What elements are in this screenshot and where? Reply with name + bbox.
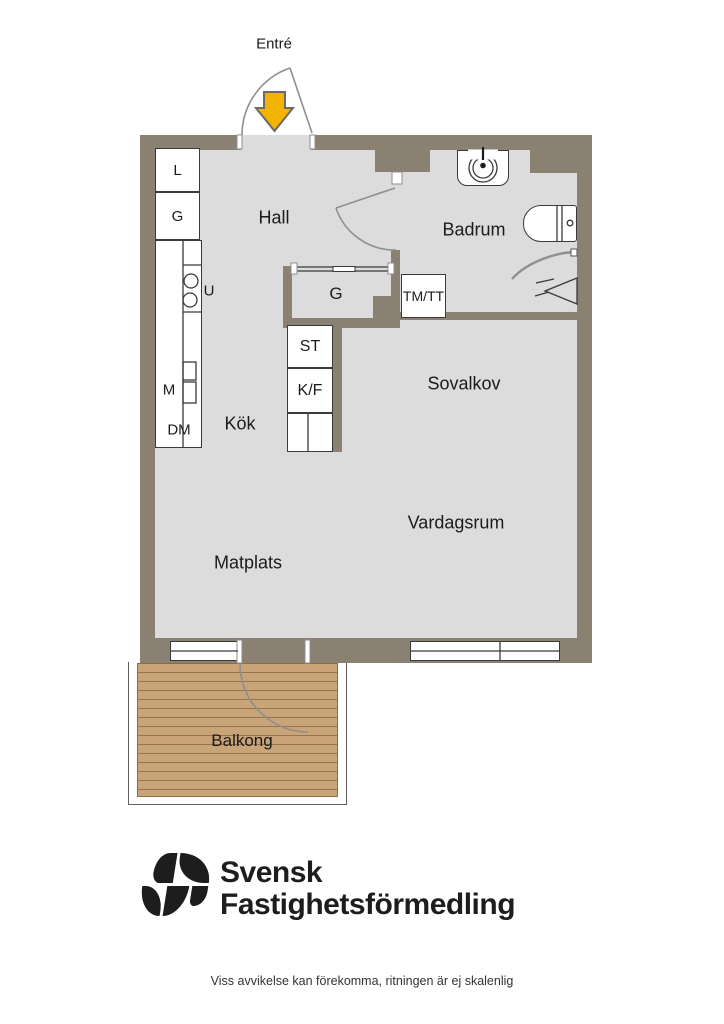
logo-petal <box>138 886 165 916</box>
washer-dryer: TM/TT <box>401 274 446 318</box>
washer-dryer-label: TM/TT <box>403 288 444 304</box>
wall-bathroom-stub <box>375 150 430 172</box>
brand-name-line2: Fastighetsförmedling <box>220 889 515 921</box>
brand-name-line1: Svensk <box>220 857 515 889</box>
closet-wardrobe: G <box>155 192 200 240</box>
room-label-matplats: Matplats <box>214 553 282 574</box>
room-label-badrum: Badrum <box>442 220 505 241</box>
logo-petal <box>189 886 208 906</box>
wall-left <box>140 135 155 663</box>
closet-linen: L <box>155 148 200 192</box>
logo-petal <box>152 853 178 883</box>
room-label-sovalkov: Sovalkov <box>427 374 500 395</box>
fridge-freezer: K/F <box>287 368 333 413</box>
logo-petal <box>176 853 214 883</box>
wall-shaft-block <box>530 150 577 173</box>
closet-linen-label: L <box>173 162 181 179</box>
window-right <box>410 641 560 661</box>
closet-wardrobe-label: G <box>172 208 184 225</box>
window-left <box>170 641 238 661</box>
room-label-vardagsrum: Vardagsrum <box>408 513 505 534</box>
room-label-balkong: Balkong <box>211 731 272 751</box>
wall-right <box>577 135 592 663</box>
entry-arrow-icon <box>256 92 293 131</box>
entry-threshold <box>242 135 310 150</box>
hall-wardrobe-label: G <box>329 284 342 304</box>
sink-icon <box>457 150 509 186</box>
room-label-entre: Entré <box>256 36 292 53</box>
wall-hall-closet-left <box>283 266 292 320</box>
room-label-hall: Hall <box>258 208 289 229</box>
kitchen-cabinet <box>287 413 333 452</box>
fridge-freezer-label: K/F <box>298 382 323 400</box>
wall-top-right <box>311 135 592 150</box>
dishwasher-label: DM <box>167 422 190 439</box>
toilet-icon <box>523 205 577 242</box>
microwave-label: M <box>163 382 176 399</box>
brand-name: Svensk Fastighetsförmedling <box>220 857 515 921</box>
disclaimer-text: Viss avvikelse kan förekomma, ritningen … <box>0 974 724 988</box>
room-label-kok: Kök <box>224 414 255 435</box>
oven-label: U <box>204 283 215 300</box>
balcony-deck <box>137 663 338 797</box>
kitchen-counter <box>155 240 202 448</box>
brand-logo-icon <box>136 853 213 923</box>
logo-petal <box>163 886 190 916</box>
wall-sovalkov-left <box>333 328 342 452</box>
cleaning-closet-label: ST <box>300 338 320 356</box>
cleaning-closet: ST <box>287 325 333 368</box>
floor-plan-page: L G ST K/F TM/TT <box>0 0 724 1024</box>
